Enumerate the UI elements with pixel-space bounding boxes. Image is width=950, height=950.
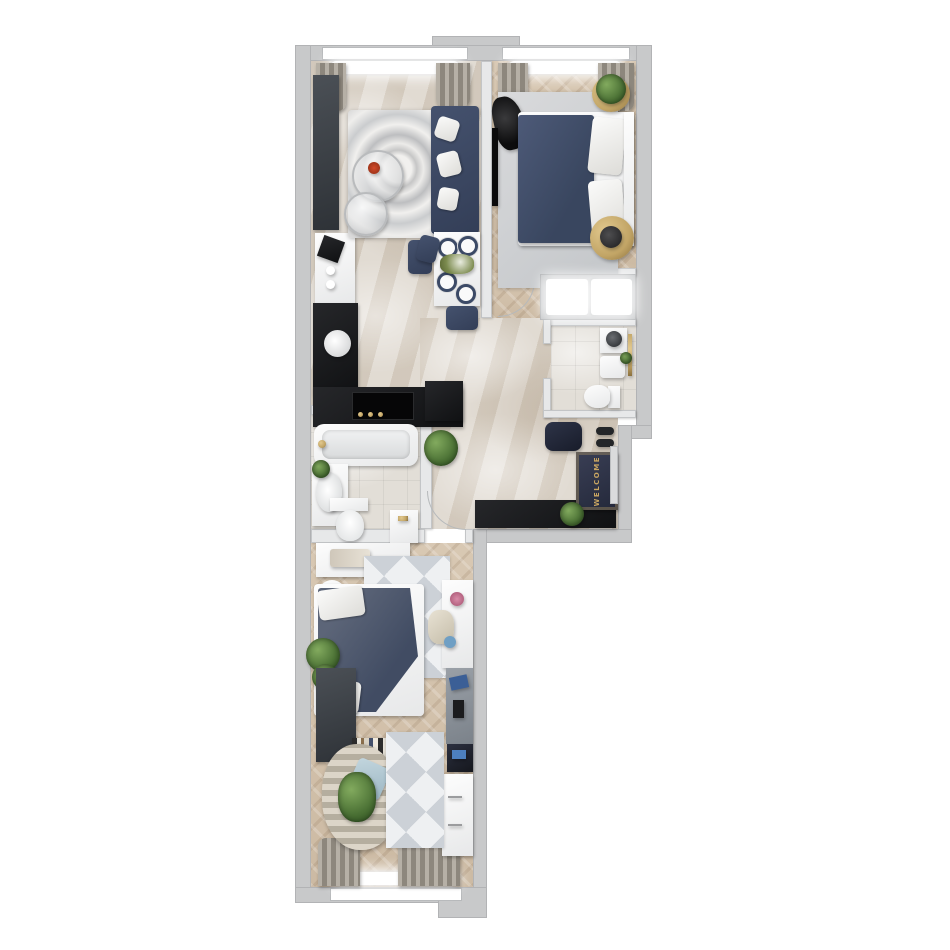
entry-plant [560, 502, 584, 526]
bath1-toilet-bowl [336, 510, 364, 541]
bedroom2-triangle-rug-2 [386, 732, 444, 848]
washing-machine-door [606, 331, 622, 347]
bed1-pillow-top [587, 116, 627, 175]
cabinet-handle-2 [448, 824, 462, 826]
partition-bath2-bottom [543, 410, 636, 418]
desk-flowers [450, 592, 464, 606]
wall-right-entry [618, 425, 632, 543]
living-curtain-right [436, 63, 470, 107]
glass-coffee-table-small [344, 192, 388, 236]
printer-blue-detail [452, 750, 466, 759]
bath1-cabinet [390, 510, 418, 543]
living-window [322, 47, 468, 60]
tall-wardrobe-unit [313, 75, 339, 230]
wall-right-upper [636, 45, 652, 437]
cooktop-knob-1 [358, 412, 363, 417]
cooktop-knob-3 [378, 412, 383, 417]
dining-chair-south [446, 306, 478, 330]
wall-tv-icon [492, 128, 498, 206]
bed1-duvet [518, 115, 594, 243]
table-flower-decor [368, 162, 380, 174]
desk-chair-accent [444, 636, 456, 648]
bath2-toilet-bowl [584, 385, 610, 408]
partition-living-bedroom1 [481, 61, 492, 318]
bedroom1-plant [596, 74, 626, 104]
bedroom2-window [330, 888, 462, 901]
bedroom1-window [502, 47, 630, 60]
closet-door-right [591, 279, 632, 315]
plate-4 [456, 284, 476, 304]
bedroom2-floor-plant [338, 772, 376, 822]
bed2-pillow-top [316, 585, 366, 621]
bath2-plant [620, 352, 632, 364]
table-centerpiece [440, 254, 474, 274]
entry-door-leaf [610, 446, 618, 504]
cooktop-knob-2 [368, 412, 373, 417]
sofa-pillow-3 [436, 186, 460, 211]
cabinet-handle-1 [448, 796, 462, 798]
kitchen-peninsula [425, 381, 463, 421]
bathtub-faucet [318, 440, 326, 448]
hall-corner-plant [424, 430, 458, 466]
counter-knob-1 [326, 266, 335, 275]
bathtub-inner [322, 430, 410, 459]
entry-bench [545, 422, 582, 451]
entry-shoes-1 [596, 427, 614, 435]
partition-bath2-left-a [543, 318, 551, 344]
wall-step-horizontal [473, 529, 632, 543]
plate-3 [437, 272, 457, 292]
wall-left [295, 45, 311, 903]
plate-2 [458, 236, 478, 256]
counter-knob-2 [326, 280, 335, 289]
bath1-cabinet-decor [398, 516, 408, 521]
floor-plan-canvas: WELCOME [0, 0, 950, 950]
closet-door-left [546, 279, 588, 315]
wall-right-lower [473, 529, 487, 903]
side-table-decor [600, 226, 622, 248]
bath1-plant [312, 460, 330, 478]
welcome-doormat-text: WELCOME [593, 456, 601, 506]
shelf-phone [453, 700, 464, 718]
bedroom2-white-cabinet [442, 774, 473, 856]
partition-hall-bedroom2-b [465, 529, 473, 543]
kitchen-sink-icon [324, 330, 351, 357]
